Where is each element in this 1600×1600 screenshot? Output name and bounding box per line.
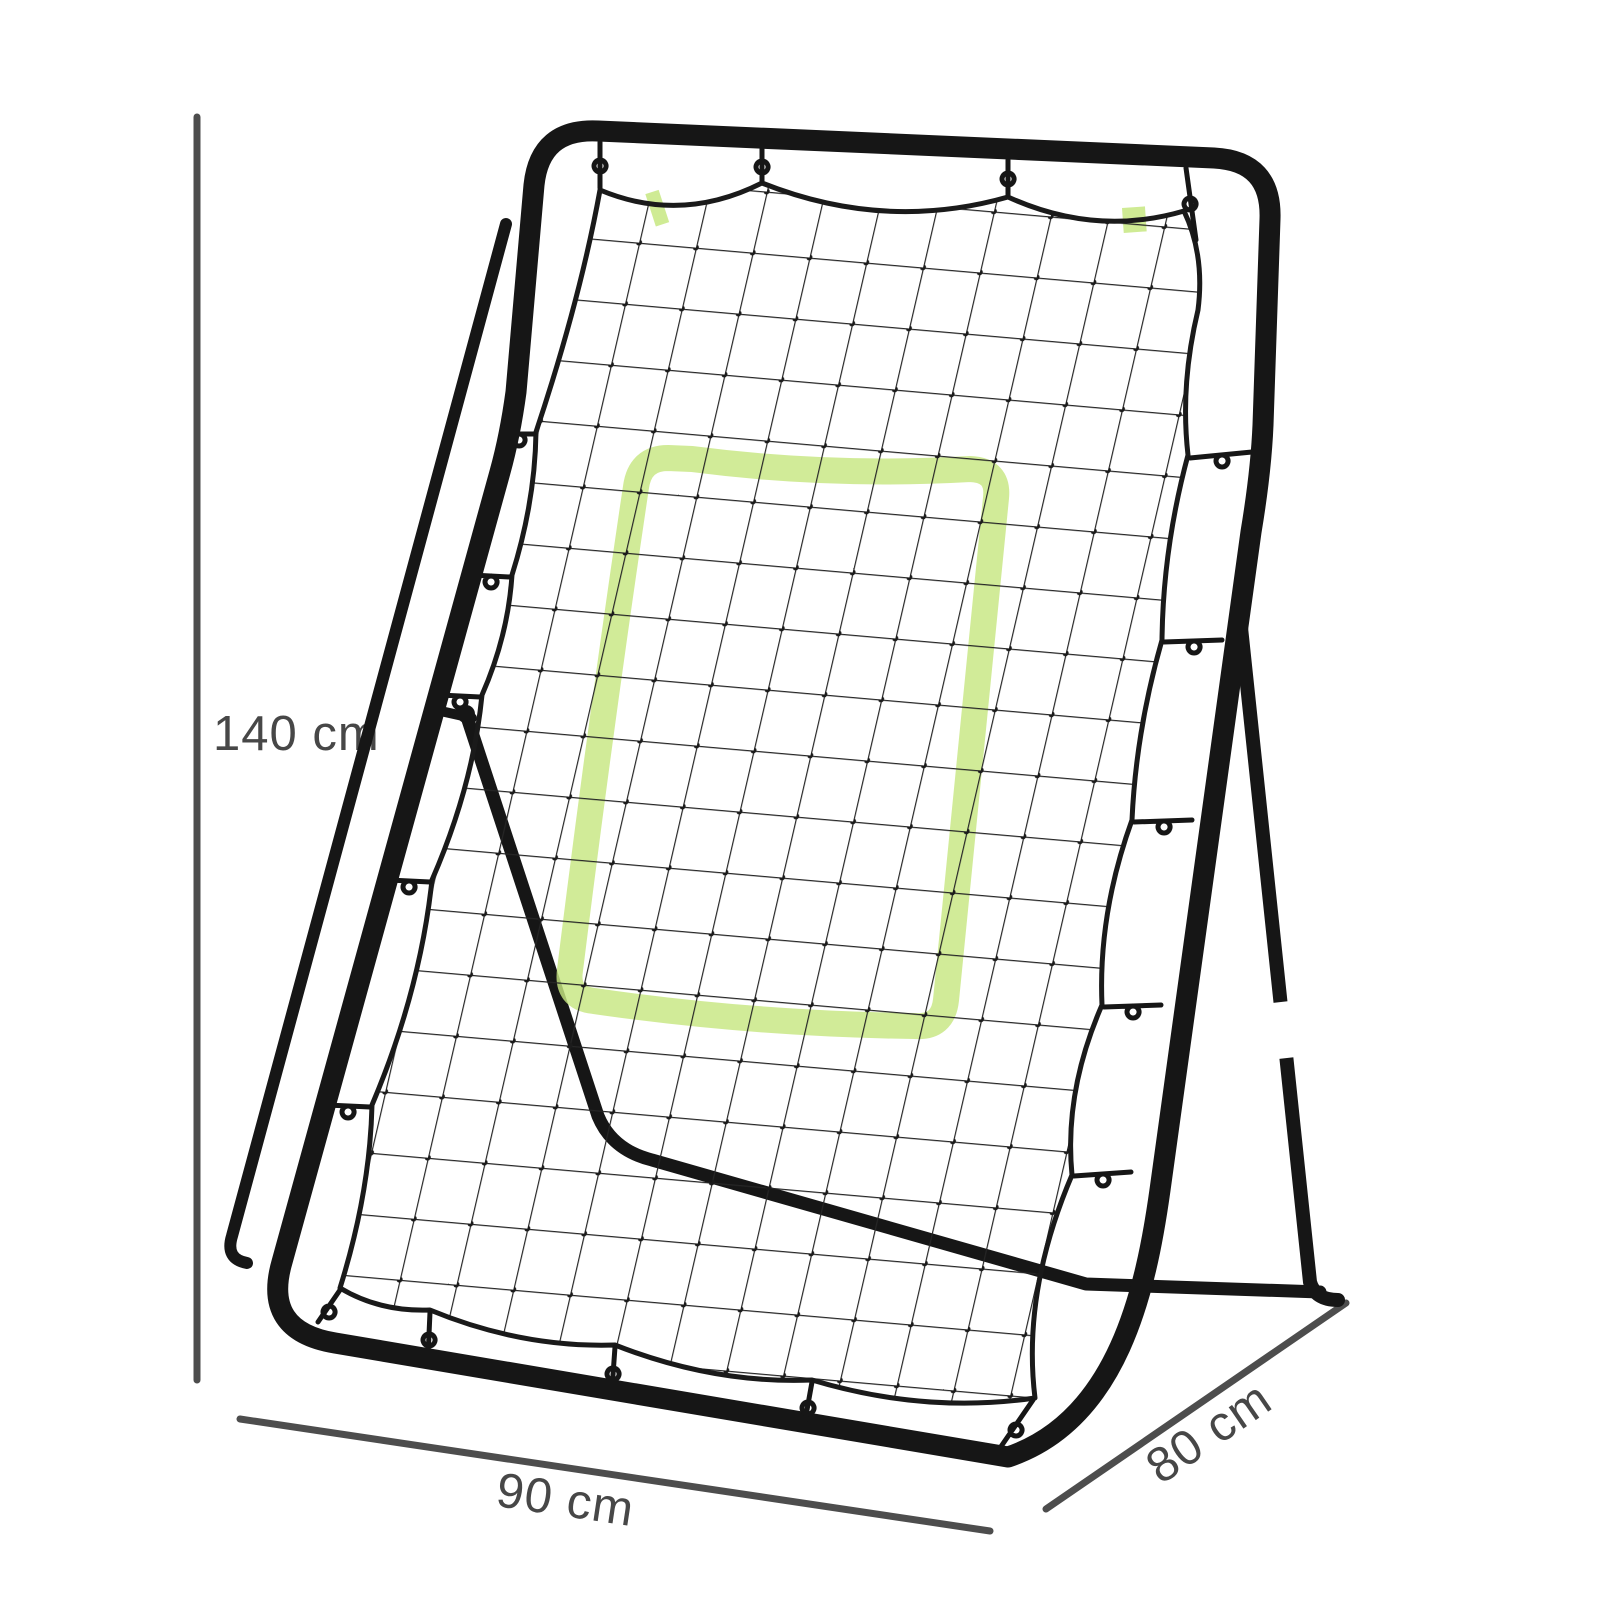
leg-adjustment-band — [1281, 1002, 1287, 1058]
product-dimension-diagram: 140 cm 90 cm 80 cm — [0, 0, 1600, 1600]
height-dimension-label: 140 cm — [213, 707, 380, 761]
rear-leg-right — [1240, 618, 1338, 1300]
rebounder-diagram-canvas: 140 cm 90 cm 80 cm — [0, 0, 1600, 1600]
